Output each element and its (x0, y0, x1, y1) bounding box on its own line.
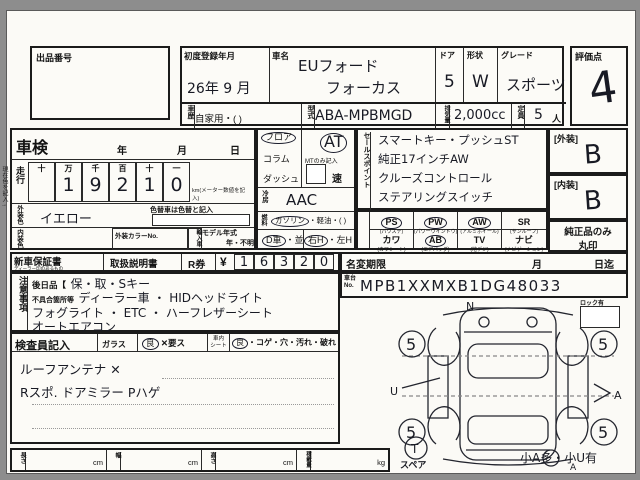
shape-cell: 形状 W (464, 48, 498, 102)
genuine-note-line1: 純正品のみ (550, 224, 626, 238)
seat-label-line2: シート (208, 343, 229, 350)
width-cell: cm (121, 450, 202, 470)
wheel-fr (556, 328, 588, 365)
equip-cell-sr: SR (サンルーフ) (502, 212, 546, 230)
tire-grade-fl: 5 (406, 335, 416, 354)
glass-options: 良 ✕要ス (138, 334, 208, 352)
first-reg-cell: 初度登録年月 26年 9 月 (182, 48, 270, 102)
import-label: 輸入車 (188, 228, 202, 250)
door-value: 5 (444, 72, 455, 92)
mileage-row: 走行 十 万 1 千 9 百 2 十 1 一 0 (12, 160, 254, 204)
spare-label: スペア (400, 460, 426, 470)
equip-cell-tv: TV (地デジ) (458, 230, 502, 248)
car-name-line1: EUフォード (298, 55, 378, 76)
mark-top: N (466, 300, 474, 313)
shift-cell: フロア コラム ダッシュ AT MTのみ記入 速 (258, 130, 354, 188)
header-block: 初度登録年月 26年 9 月 車名 EUフォード フォーカス ドア 5 形状 W… (180, 46, 564, 126)
wheel-fl (428, 328, 460, 365)
yen-sign: ¥ (220, 255, 227, 269)
model-code-label: 型式 (302, 105, 315, 129)
height-cell: cm (216, 450, 297, 470)
displacement-label: 排気量 (436, 105, 450, 129)
seat-label-line1: 車内 (208, 336, 229, 343)
guide-line (32, 404, 334, 405)
ext-color-row: 外装色 イエロー 色替車は色替と記入 (12, 204, 254, 228)
mileage-label: 走行 (15, 166, 24, 184)
door-cell: ドア 5 (436, 48, 464, 102)
glass-bad: ✕要ス (161, 338, 185, 348)
length-label: 長さ (12, 452, 26, 470)
warranty-cell: 新車保証書 ディーラー印のあるもの (12, 254, 104, 270)
ac-label: 冷房 (260, 190, 267, 203)
equipment-grid: PS (パワステ) PW (パワーウインドウ) AW (アルミホイール) SR … (356, 210, 548, 250)
digit-value: 9 (83, 174, 108, 196)
seat-opts: ・コゲ・穴・汚れ・破れ (248, 338, 336, 347)
exterior-grade-box: [外装] B (548, 128, 628, 174)
width-label: 幅 (107, 452, 121, 470)
mark-right-arrow (594, 384, 610, 402)
shape-label: 形状 (467, 50, 483, 61)
interior-grade-box: [内装] B (548, 174, 628, 220)
equip-code: SR (518, 217, 531, 227)
parallel: ・並 (286, 235, 304, 245)
fuel-gas: ガソリン (271, 216, 309, 227)
header-row2: 車歴 自家用・( ) 型式 ABA-MPBMGD 排気量 2,000cc 定員 … (182, 102, 566, 128)
auction-no-box: 出品番号 (30, 46, 170, 120)
guide-line (162, 378, 334, 379)
digit-value: 0 (164, 174, 189, 196)
seat-options: 良・コゲ・穴・汚れ・破れ (232, 337, 336, 349)
interior-grade: B (583, 185, 603, 216)
inspector-hand-line2: Rスポ. ドアミラー Pハゲ (20, 382, 160, 401)
mt-box (306, 164, 326, 184)
chassis-label-2: No. (344, 283, 356, 290)
capacity-label: 定員 (512, 105, 525, 129)
namechange-day: 日迄 (594, 256, 614, 271)
windshield (468, 344, 548, 378)
shift-dash: ダッシュ (263, 172, 299, 185)
first-reg-value: 26年 9 月 (187, 78, 251, 98)
namechange-month: 月 (532, 256, 542, 271)
sales-line: 純正17インチAW (378, 151, 469, 167)
mark-left-line (402, 378, 440, 388)
equip-cell-pw: PW (パワーウインドウ) (414, 212, 458, 230)
shift-column: コラム (263, 152, 290, 165)
rhd: 右H (304, 235, 328, 247)
rticket-cell: R券 (182, 254, 216, 270)
score-label: 評価点 (575, 50, 602, 63)
mileage-digit-cell: 十 (28, 162, 55, 202)
equip-cell-ps: PS (パワステ) (370, 212, 414, 230)
left-block: 車検 年 月 日 走行 十 万 1 千 9 百 2 十 (10, 128, 256, 250)
rear-window (468, 416, 548, 444)
notes-label: 注意事項 (12, 276, 28, 330)
sales-label: セールスポイント (358, 132, 371, 210)
front-bumper (443, 308, 573, 315)
fuel-label: 燃料 (260, 214, 266, 226)
displacement-value: 2,000cc (450, 104, 512, 128)
price-digit: 1 (234, 254, 254, 270)
digit-header: 一 (164, 163, 189, 174)
shaken-day: 日 (230, 142, 240, 157)
seat-good: 良 (232, 338, 248, 349)
manual-cell: 取扱説明書 (104, 254, 182, 270)
price-digit: 3 (274, 254, 294, 270)
sales-line: ステアリングスイッチ (378, 189, 493, 205)
equip-cell-kawa: カワ (カワシート) (370, 230, 414, 248)
exterior-label: [外装] (554, 132, 578, 145)
fuel-row: 燃料 ガソリン・軽油・( ) (258, 212, 354, 230)
score-value: 4 (586, 61, 621, 115)
mid-block: フロア コラム ダッシュ AT MTのみ記入 速 冷房 AAC 燃料 ガソリン・… (256, 128, 356, 250)
seat-label: 車内 シート (208, 334, 230, 352)
mark-left: U (390, 385, 398, 398)
color-no-label: 外装カラーNo. (113, 229, 187, 240)
namechange-row: 名変期限 月 日迄 (340, 252, 628, 272)
tire-grade-fr: 5 (598, 335, 608, 354)
first-reg-label: 初度登録年月 (184, 50, 235, 62)
notes-block: 注意事項 後日品【 保・取・Sキー 不具合箇所等 ディーラー車 ・ HIDヘッド… (10, 272, 340, 332)
equip-code: カワ (382, 235, 400, 245)
sales-line: クルーズコントロール (378, 170, 492, 186)
km-note: km(メーター数値を記入) (192, 186, 252, 202)
capacity-unit: 人 (552, 112, 561, 125)
glass-label: ガラス (98, 334, 138, 352)
capacity-value: 5 (534, 107, 543, 123)
genuine-note-box: 純正品のみ 丸印 (548, 220, 628, 252)
fuel-rest: ・軽油・( ) (309, 216, 346, 225)
shaken-label: 車検 (16, 134, 48, 158)
speed-label: 速 (332, 170, 342, 185)
inspector-label: 検査員記入 (12, 334, 98, 352)
interior-label: [内装] (554, 178, 578, 191)
glass-good: 良 (142, 338, 159, 350)
price-digit: 0 (314, 254, 334, 270)
ac-value: AAC (286, 191, 317, 209)
chassis-label-1: 車台 (344, 276, 356, 283)
grade-cell: グレード スポーツ (498, 48, 566, 102)
sales-block: セールスポイント スマートキー・プッシュST 純正17インチAW クルーズコント… (356, 128, 548, 210)
equip-code: ナビ (515, 235, 533, 245)
digit-value: 1 (137, 174, 162, 196)
inspector-block: 検査員記入 ガラス 良 ✕要ス 車内 シート 良・コゲ・穴・汚れ・破れ ルーフア… (10, 332, 340, 444)
inspector-hand-line1: ルーフアンテナ ✕ (20, 359, 121, 378)
int-color-label: 内装色 (15, 229, 22, 249)
chassis-value: MPB1XXMXB1DG48033 (360, 277, 562, 295)
mileage-digit-cell: 百 2 (109, 162, 136, 202)
auction-sheet: 現在色を記入→ 出品番号 初度登録年月 26年 9 月 車名 EUフォード フォ… (0, 0, 640, 480)
ext-color-value: イエロー (40, 208, 92, 227)
guide-line (32, 428, 334, 429)
at-value: AT (320, 132, 347, 153)
shift-floor: フロア (261, 132, 296, 144)
history-label: 車歴 (182, 105, 195, 129)
model-code-value: ABA-MPBMGD (315, 104, 436, 128)
dealer-car: D車 (262, 235, 286, 247)
mileage-digit-cell: 十 1 (136, 162, 163, 202)
diagram-area: ロック有 (340, 298, 628, 472)
load-label: 積載量 (297, 451, 311, 470)
current-color-note: 現在色を記入→ (1, 166, 7, 208)
mileage-digit-cell: 一 0 (163, 162, 190, 202)
shape-value: W (472, 72, 489, 92)
damage-summary: 小A多・小U有 (520, 451, 597, 465)
dimensions-row: 長さ cm 幅 cm 高さ cm 積載量 kg (10, 448, 390, 472)
ext-color-label: 外装色 (15, 205, 22, 225)
mark-right: A (614, 389, 622, 402)
equip-cell-navi: ナビ (ナビゲーション) (502, 230, 546, 248)
digit-value: 2 (110, 174, 135, 196)
history-value: 自家用・( ) (195, 104, 302, 128)
car-name-label: 車名 (272, 50, 289, 62)
tire-grade-rr: 5 (598, 423, 608, 442)
shaken-year: 年 (117, 142, 127, 157)
length-unit: cm (93, 458, 103, 467)
car-name-cell: 車名 EUフォード フォーカス (270, 48, 436, 102)
auction-no-label: 出品番号 (36, 51, 72, 64)
ac-row: 冷房 AAC (258, 188, 354, 212)
spare-mark: T (410, 442, 419, 456)
color-no-cell: 外装カラーNo. (112, 228, 188, 250)
chassis-row: 車台 No. MPB1XXMXB1DG48033 (340, 272, 628, 298)
shaken-row: 車検 年 月 日 (12, 130, 254, 160)
digit-header: 十 (29, 163, 54, 174)
shaken-month: 月 (177, 142, 187, 157)
origin-row: D車・並 右H・左H (258, 230, 354, 248)
height-label: 高さ (202, 452, 216, 470)
digit-header: 万 (56, 163, 81, 174)
model-year-value: 年・不明 (202, 238, 254, 248)
mileage-digit-cell: 万 1 (55, 162, 82, 202)
length-cell: cm (26, 450, 107, 470)
car-top-view: 5 5 5 5 N U A A T スペア 小A多・小U有 (388, 300, 628, 472)
door-label: ドア (439, 50, 455, 61)
sales-line: スマートキー・プッシュST (378, 132, 518, 148)
digit-header: 千 (83, 163, 108, 174)
digit-header: 十 (137, 163, 162, 174)
mileage-digit-cell: 千 9 (82, 162, 109, 202)
wheel-rr (556, 407, 588, 444)
lhd: ・左H (328, 235, 353, 245)
digit-header: 百 (110, 163, 135, 174)
genuine-note-line2: 丸印 (550, 238, 626, 252)
docs-row: 新車保証書 ディーラー印のあるもの 取扱説明書 R券 ¥ 1 6 3 2 0 (10, 252, 340, 272)
grade-label: グレード (501, 50, 533, 61)
car-name-line2: フォーカス (326, 77, 401, 98)
height-unit: cm (283, 458, 293, 467)
equip-cell-aw: AW (アルミホイール) (458, 212, 502, 230)
defect-value: ディーラー車 ・ HIDヘッドライト (78, 291, 263, 305)
model-year-cell: モデル年式 年・不明 (202, 228, 254, 250)
namechange-label: 名変期限 (346, 256, 386, 271)
exterior-grade: B (583, 139, 603, 170)
score-box: 評価点 4 (570, 46, 628, 126)
tire-grade-rl: 5 (406, 423, 416, 442)
digit-value: 1 (56, 174, 81, 196)
headlight-right (527, 317, 537, 327)
grade-value: スポーツ (506, 74, 566, 95)
equip-cell-ab: AB (エアバッグ) (414, 230, 458, 248)
equip-code: TV (474, 235, 486, 245)
price-digit: 2 (294, 254, 314, 270)
color-change-box (152, 214, 250, 226)
car-body (460, 308, 556, 460)
width-unit: cm (188, 458, 198, 467)
price-digit: 6 (254, 254, 274, 270)
int-color-row: 内装色 外装カラーNo. 輸入車 モデル年式 年・不明 (12, 228, 254, 250)
model-year-label: モデル年式 (202, 228, 254, 238)
wheel-rl (428, 407, 460, 444)
headlight-left (479, 317, 489, 327)
defect-label: 不具合箇所等 (32, 297, 74, 304)
